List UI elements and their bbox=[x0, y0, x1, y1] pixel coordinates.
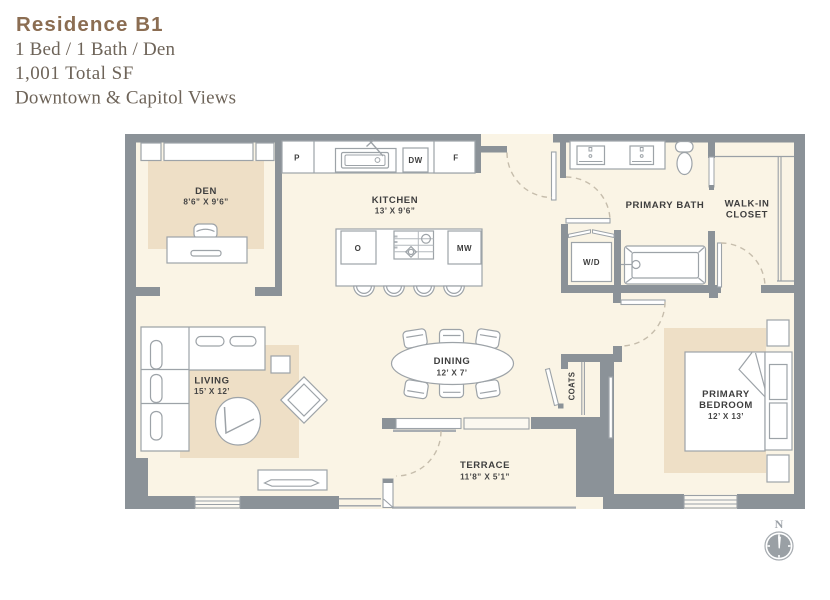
svg-text:KITCHEN: KITCHEN bbox=[372, 195, 418, 206]
svg-text:N: N bbox=[775, 517, 784, 531]
svg-text:1,001 Total SF: 1,001 Total SF bbox=[15, 63, 134, 84]
svg-text:TERRACE: TERRACE bbox=[460, 460, 510, 471]
svg-text:PRIMARY BATH: PRIMARY BATH bbox=[626, 200, 705, 211]
svg-text:11’8” X 5’1”: 11’8” X 5’1” bbox=[460, 473, 510, 482]
svg-text:O: O bbox=[355, 244, 362, 253]
svg-text:PRIMARY: PRIMARY bbox=[702, 389, 750, 400]
svg-text:Downtown & Capitol Views: Downtown & Capitol Views bbox=[15, 88, 236, 109]
svg-text:12’ X 7’: 12’ X 7’ bbox=[437, 369, 468, 378]
svg-text:DINING: DINING bbox=[434, 356, 471, 367]
svg-text:12’ X 13’: 12’ X 13’ bbox=[708, 412, 744, 421]
svg-text:WALK-IN: WALK-IN bbox=[725, 199, 770, 210]
svg-text:DW: DW bbox=[408, 156, 422, 165]
svg-text:DEN: DEN bbox=[195, 186, 217, 197]
svg-text:W/D: W/D bbox=[583, 258, 600, 267]
svg-text:13’ X 9’6”: 13’ X 9’6” bbox=[375, 207, 415, 216]
svg-text:COATS: COATS bbox=[568, 372, 577, 401]
svg-text:LIVING: LIVING bbox=[194, 376, 229, 387]
svg-text:MW: MW bbox=[457, 244, 472, 253]
svg-text:1 Bed / 1 Bath / Den: 1 Bed / 1 Bath / Den bbox=[15, 39, 176, 60]
svg-text:Residence B1: Residence B1 bbox=[16, 13, 164, 36]
svg-text:P: P bbox=[294, 154, 300, 163]
svg-text:15’ X 12’: 15’ X 12’ bbox=[194, 387, 230, 396]
svg-text:F: F bbox=[453, 154, 458, 163]
svg-text:CLOSET: CLOSET bbox=[726, 210, 768, 221]
svg-text:8’6” X 9’6”: 8’6” X 9’6” bbox=[183, 198, 228, 207]
svg-text:BEDROOM: BEDROOM bbox=[699, 400, 753, 411]
